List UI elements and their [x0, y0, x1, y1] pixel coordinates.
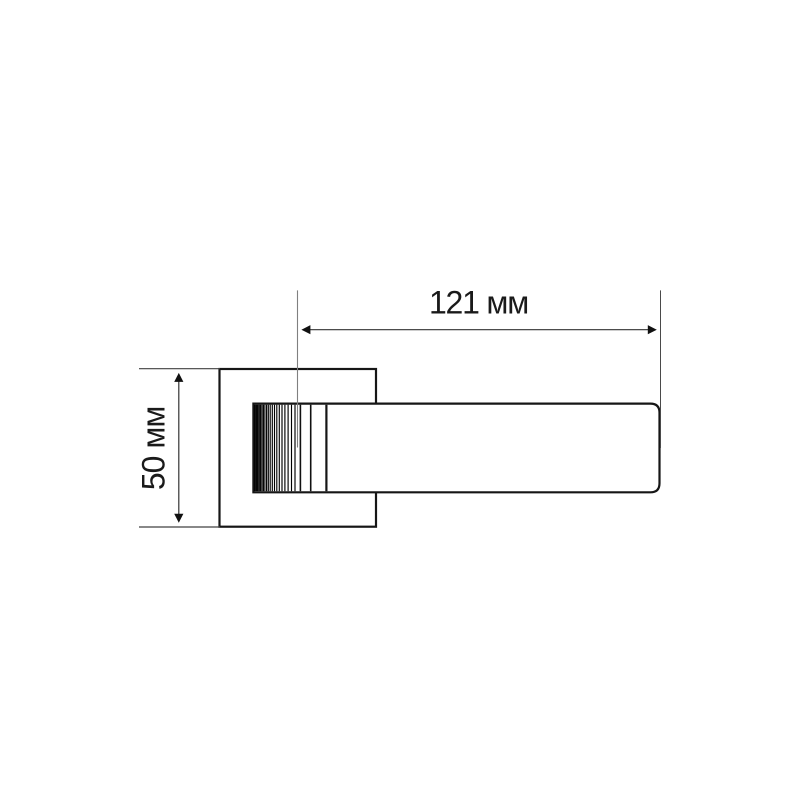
svg-text:50 мм: 50 мм — [135, 407, 171, 490]
svg-text:121 мм: 121 мм — [429, 285, 528, 321]
